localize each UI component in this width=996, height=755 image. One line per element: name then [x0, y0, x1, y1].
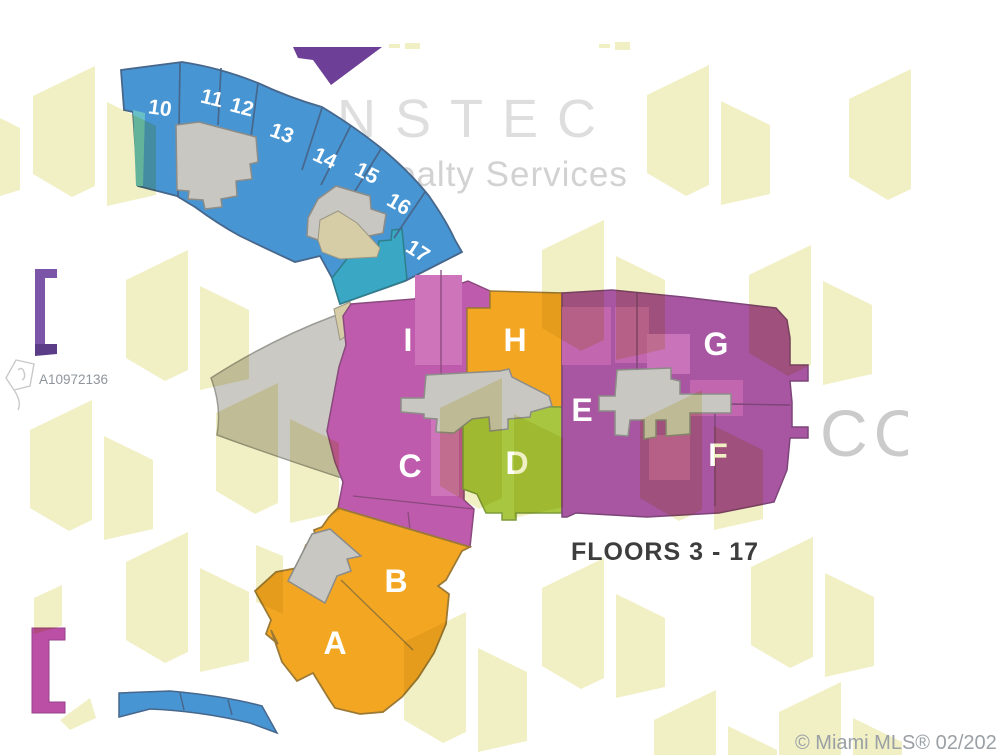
- svg-text:© Miami MLS® 02/2021: © Miami MLS® 02/2021: [795, 732, 996, 754]
- svg-text:A10972136: A10972136: [39, 372, 108, 387]
